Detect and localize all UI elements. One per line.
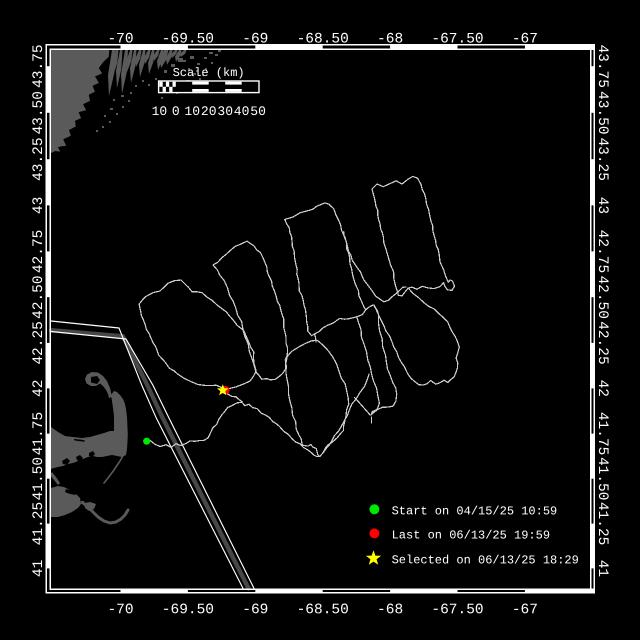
svg-text:43.25: 43.25 xyxy=(31,137,47,181)
svg-text:41.50: 41.50 xyxy=(594,457,610,501)
svg-text:41.75: 41.75 xyxy=(31,412,47,456)
svg-text:20: 20 xyxy=(201,104,217,119)
svg-text:43: 43 xyxy=(594,197,610,214)
svg-text:10: 10 xyxy=(152,104,168,119)
svg-text:Last on 06/13/25 19:59: Last on 06/13/25 19:59 xyxy=(392,528,550,542)
svg-text:43.50: 43.50 xyxy=(594,91,610,135)
svg-text:-69.50: -69.50 xyxy=(162,31,214,47)
svg-text:-69: -69 xyxy=(242,602,268,618)
svg-text:-69.50: -69.50 xyxy=(162,602,214,618)
svg-text:-67: -67 xyxy=(512,31,538,47)
svg-text:-70: -70 xyxy=(107,602,133,618)
svg-text:40: 40 xyxy=(234,104,250,119)
svg-text:41.75: 41.75 xyxy=(594,412,610,456)
svg-text:Start on 04/15/25 10:59: Start on 04/15/25 10:59 xyxy=(392,504,558,518)
svg-text:-68.50: -68.50 xyxy=(297,31,349,47)
svg-text:42: 42 xyxy=(31,380,47,397)
svg-text:0: 0 xyxy=(172,104,180,119)
svg-text:-68: -68 xyxy=(377,31,403,47)
svg-text:50: 50 xyxy=(250,104,266,119)
svg-text:42.75: 42.75 xyxy=(594,230,610,274)
svg-text:41.25: 41.25 xyxy=(31,502,47,546)
svg-text:42.25: 42.25 xyxy=(594,321,610,365)
svg-text:43.75: 43.75 xyxy=(594,44,610,88)
svg-text:-69: -69 xyxy=(242,31,268,47)
svg-text:-70: -70 xyxy=(107,31,133,47)
svg-text:43.25: 43.25 xyxy=(594,137,610,181)
svg-text:42.50: 42.50 xyxy=(594,275,610,319)
svg-text:43.75: 43.75 xyxy=(31,44,47,88)
svg-text:30: 30 xyxy=(217,104,233,119)
svg-text:-68: -68 xyxy=(377,602,403,618)
svg-text:42.25: 42.25 xyxy=(31,321,47,365)
svg-text:10: 10 xyxy=(184,104,200,119)
svg-text:43.50: 43.50 xyxy=(31,91,47,135)
svg-text:-68.50: -68.50 xyxy=(297,602,349,618)
svg-text:42: 42 xyxy=(594,380,610,397)
svg-text:41.50: 41.50 xyxy=(31,457,47,501)
svg-text:Scale (km): Scale (km) xyxy=(173,66,245,80)
svg-text:41.25: 41.25 xyxy=(594,502,610,546)
svg-text:43: 43 xyxy=(31,197,47,214)
svg-text:-67.50: -67.50 xyxy=(431,602,483,618)
svg-text:41: 41 xyxy=(594,560,610,577)
svg-text:42.75: 42.75 xyxy=(31,230,47,274)
svg-text:42.50: 42.50 xyxy=(31,275,47,319)
svg-text:-67.50: -67.50 xyxy=(431,31,483,47)
svg-text:41: 41 xyxy=(31,560,47,577)
svg-text:-67: -67 xyxy=(512,602,538,618)
svg-text:Selected on 06/13/25 18:29: Selected on 06/13/25 18:29 xyxy=(392,553,579,567)
